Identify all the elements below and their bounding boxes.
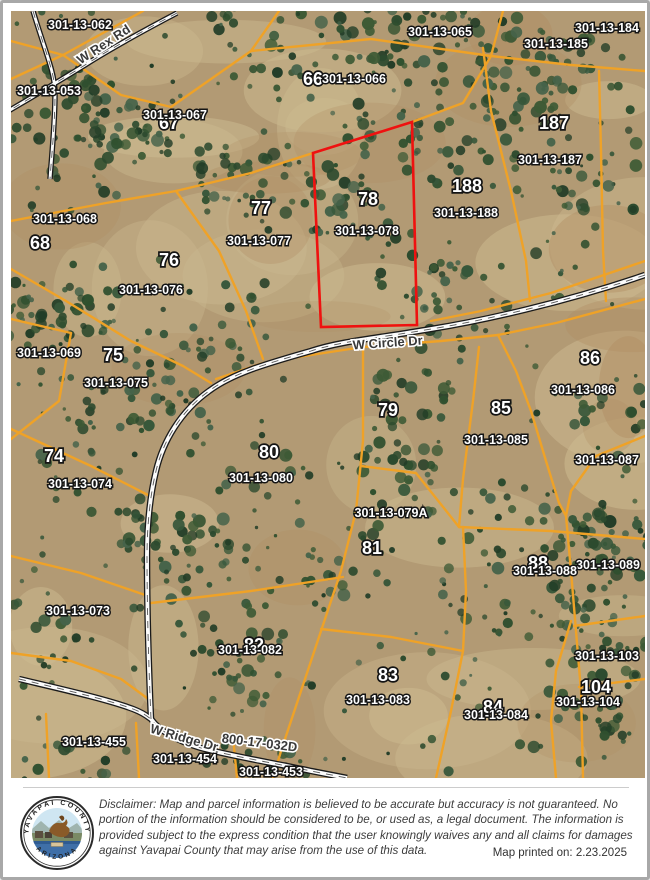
apn-label: 301-13-083 bbox=[346, 693, 410, 707]
apn-label: 301-13-062 bbox=[48, 18, 112, 32]
lot-number-label: 104 bbox=[581, 677, 611, 697]
apn-label: 301-13-185 bbox=[524, 37, 588, 51]
lot-number-label: 85 bbox=[491, 398, 511, 418]
lot-number-label: 66 bbox=[303, 69, 323, 89]
county-seal: YAVAPAI COUNTY ARIZONA bbox=[19, 795, 95, 871]
lot-number-label: 81 bbox=[362, 538, 382, 558]
apn-label: 301-13-086 bbox=[551, 383, 615, 397]
apn-label: 301-13-080 bbox=[229, 471, 293, 485]
apn-label: 301-13-073 bbox=[46, 604, 110, 618]
apn-label: 301-13-453 bbox=[239, 765, 303, 778]
lot-number-label: 80 bbox=[259, 442, 279, 462]
apn-label: 301-13-184 bbox=[575, 21, 639, 35]
footer-divider bbox=[23, 787, 629, 788]
lot-number-label: 76 bbox=[159, 250, 179, 270]
apn-label: 301-13-066 bbox=[322, 72, 386, 86]
apn-label: 301-13-084 bbox=[464, 708, 528, 722]
map-viewport[interactable]: 6667187188787768767586857980748188828310… bbox=[11, 11, 645, 778]
window-frame: 6667187188787768767586857980748188828310… bbox=[0, 0, 650, 880]
apn-label: 301-13-088 bbox=[513, 564, 577, 578]
apn-label: 301-13-069 bbox=[17, 346, 81, 360]
lot-number-label: 78 bbox=[358, 189, 378, 209]
apn-label: 301-13-454 bbox=[153, 752, 217, 766]
apn-label: 301-13-065 bbox=[408, 25, 472, 39]
apn-label: 301-13-076 bbox=[119, 283, 183, 297]
apn-label: 301-13-087 bbox=[575, 453, 639, 467]
lot-number-label: 75 bbox=[103, 345, 123, 365]
apn-label: 301-13-078 bbox=[335, 224, 399, 238]
lot-number-label: 68 bbox=[30, 233, 50, 253]
lot-number-label: 83 bbox=[378, 665, 398, 685]
lot-number-label: 86 bbox=[580, 348, 600, 368]
apn-label: 301-13-089 bbox=[576, 558, 640, 572]
apn-label: 301-13-079A bbox=[355, 506, 428, 520]
apn-label: 301-13-188 bbox=[434, 206, 498, 220]
apn-label: 301-13-077 bbox=[227, 234, 291, 248]
apn-label: 301-13-455 bbox=[62, 735, 126, 749]
lot-number-label: 74 bbox=[44, 446, 64, 466]
apn-label: 301-13-187 bbox=[518, 153, 582, 167]
print-date-label: Map printed on: 2.23.2025 bbox=[493, 847, 627, 859]
apn-label: 301-13-103 bbox=[575, 649, 639, 663]
lot-number-label: 77 bbox=[251, 198, 271, 218]
apn-label: 301-13-067 bbox=[143, 108, 207, 122]
parcel-map-canvas[interactable]: 6667187188787768767586857980748188828310… bbox=[11, 11, 645, 778]
footer-panel: YAVAPAI COUNTY ARIZONA Disclaimer: Map a… bbox=[3, 787, 647, 877]
apn-label: 301-13-053 bbox=[17, 84, 81, 98]
apn-label: 301-13-074 bbox=[48, 477, 112, 491]
lot-number-label: 188 bbox=[452, 176, 482, 196]
lot-number-label: 79 bbox=[378, 400, 398, 420]
lot-number-label: 187 bbox=[539, 113, 569, 133]
apn-label: 301-13-104 bbox=[556, 695, 620, 709]
apn-label: 301-13-075 bbox=[84, 376, 148, 390]
apn-label: 301-13-085 bbox=[464, 433, 528, 447]
apn-label: 301-13-068 bbox=[33, 212, 97, 226]
apn-label: 301-13-082 bbox=[218, 643, 282, 657]
